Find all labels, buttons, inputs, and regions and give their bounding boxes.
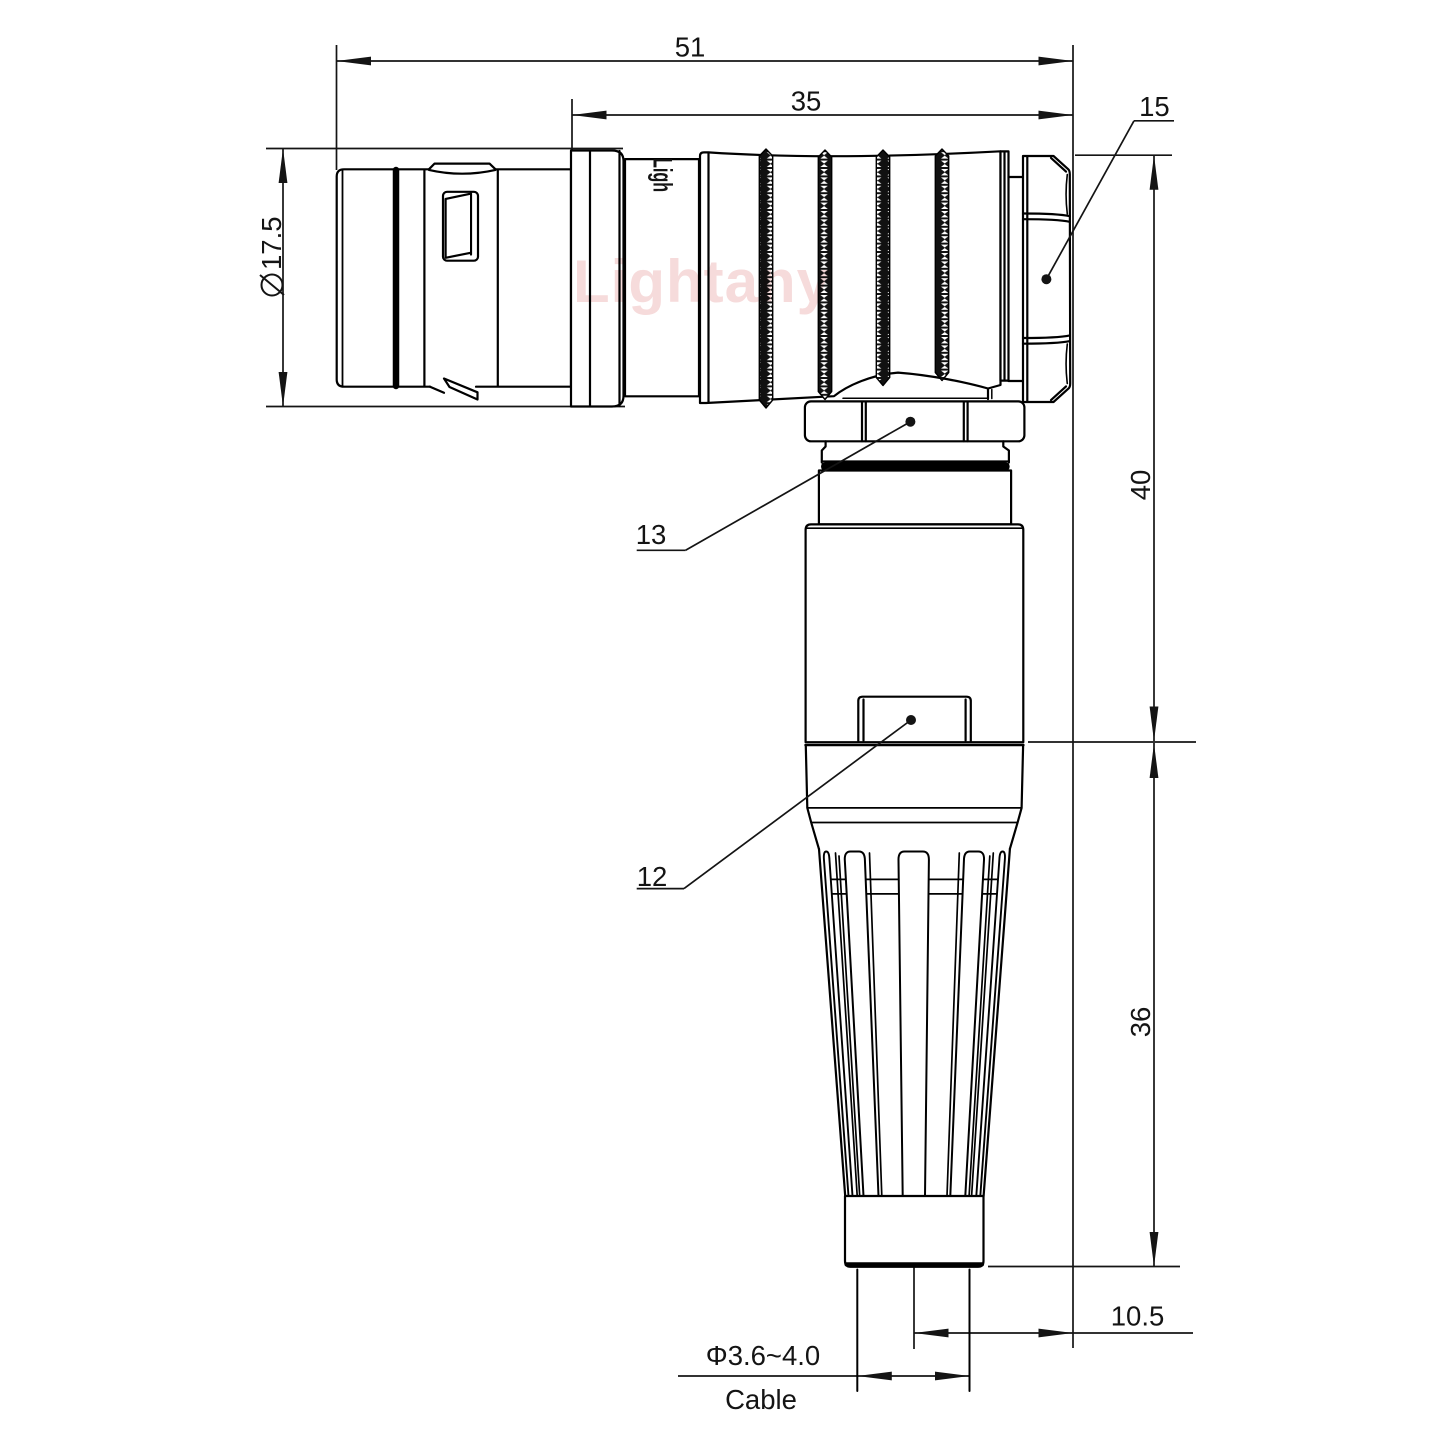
svg-text:36: 36 (1125, 1007, 1156, 1038)
svg-text:Cable: Cable (725, 1384, 797, 1415)
svg-text:15: 15 (1139, 91, 1170, 122)
svg-text:51: 51 (675, 32, 706, 63)
svg-text:Φ3.6~4.0: Φ3.6~4.0 (706, 1340, 820, 1371)
svg-text:40: 40 (1125, 470, 1156, 501)
svg-text:12: 12 (637, 861, 668, 892)
svg-text:17.5: 17.5 (256, 216, 287, 270)
svg-text:35: 35 (791, 86, 822, 117)
svg-text:10.5: 10.5 (1111, 1300, 1165, 1331)
svg-text:13: 13 (636, 519, 667, 550)
svg-text:Ligh: Ligh (647, 158, 677, 192)
